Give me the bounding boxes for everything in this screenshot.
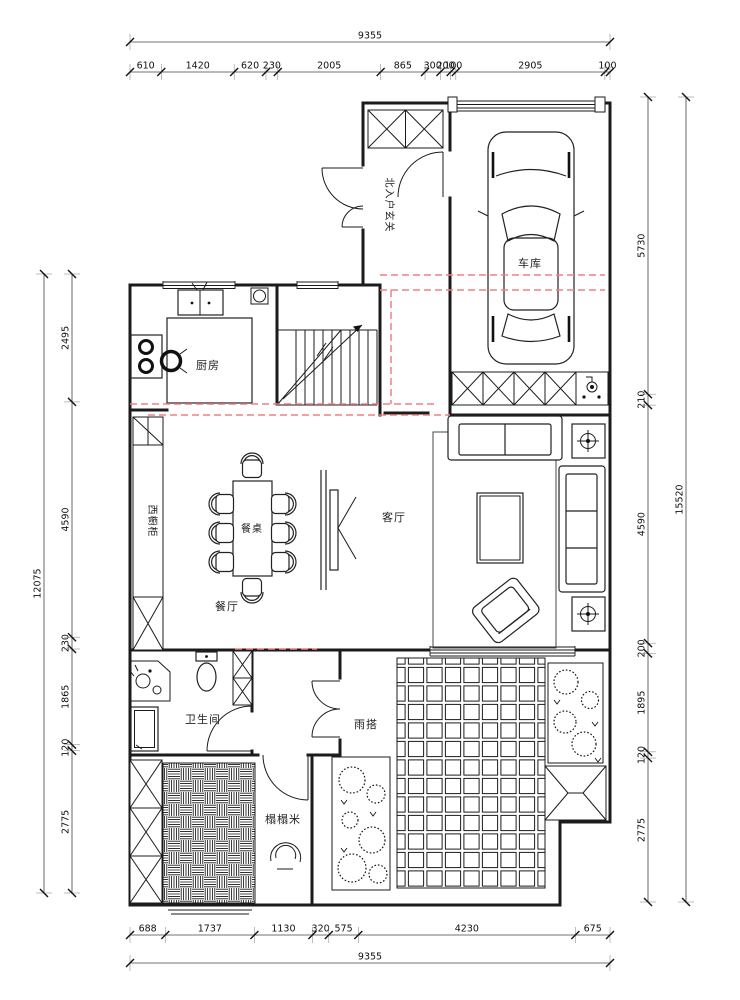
- entry-steps: [165, 906, 255, 914]
- dim-label: 15520: [675, 484, 686, 514]
- dining-chair: [209, 522, 234, 544]
- dining-table-label: 餐桌: [241, 522, 263, 535]
- rain-canopy-label: 雨搭: [354, 718, 378, 731]
- garage: 车库: [478, 132, 584, 364]
- west-cabinet-strip: 西橱柜: [133, 417, 163, 597]
- side-table-lamp-top: [572, 424, 605, 458]
- dim-chain-bottom: 6881737113032057542306759355: [126, 924, 614, 972]
- garage-door: [398, 152, 443, 197]
- tatami-chair: [271, 843, 301, 869]
- dim-label: 688: [139, 924, 157, 935]
- wok: [162, 352, 181, 371]
- living-room: 客厅: [382, 416, 605, 648]
- dining-room: 餐桌 餐厅: [209, 453, 356, 613]
- tatami-mat: [163, 763, 255, 903]
- dim-label: 575: [335, 924, 353, 935]
- west-cabinet-label: 西橱柜: [146, 505, 159, 538]
- dim-chain-top: 6101420620230200586530020010029051009355: [126, 31, 617, 81]
- foyer-window: [297, 280, 338, 290]
- garage-label: 车库: [518, 256, 542, 270]
- dim-chain-right: 573021045902001895120277515520: [637, 93, 695, 906]
- sofa-three-seat: [559, 466, 605, 592]
- dim-label: 4590: [637, 512, 648, 536]
- dim-label: 2775: [637, 818, 648, 842]
- dim-label: 2495: [61, 326, 72, 350]
- dining-chair: [272, 522, 297, 544]
- tatami-label: 榻榻米: [265, 812, 301, 826]
- dim-label: 9355: [358, 952, 382, 963]
- planting-bed-right: [548, 663, 603, 763]
- dim-label: 2905: [518, 61, 542, 72]
- vanity: [130, 661, 170, 701]
- dim-label: 2005: [317, 61, 341, 72]
- dim-label: 12075: [33, 568, 44, 598]
- dim-label: 100: [444, 61, 462, 72]
- dim-label: 1737: [198, 924, 222, 935]
- dim-label: 5730: [637, 234, 648, 258]
- bathroom: 卫生间: [130, 652, 221, 751]
- patio-tiles: [397, 658, 545, 888]
- kitchen-window: [163, 280, 235, 290]
- tatami-closet: [130, 760, 162, 903]
- dim-label: 4590: [61, 507, 72, 531]
- floorplan-page: 厨房 西橱柜 餐桌 餐厅: [0, 0, 740, 1000]
- planting-bed-left: [332, 757, 390, 890]
- washer: [131, 707, 158, 751]
- car: [478, 132, 584, 364]
- garage-rolling-door: [448, 97, 605, 112]
- dim-label: 210: [637, 391, 648, 409]
- dim-label: 320: [312, 924, 330, 935]
- dining-room-label: 餐厅: [215, 599, 239, 613]
- dining-chair: [272, 493, 297, 515]
- dining-chair: [209, 551, 234, 573]
- dim-label: 100: [598, 61, 616, 72]
- bathroom-label: 卫生间: [185, 712, 221, 726]
- dim-label: 1895: [637, 691, 648, 715]
- courtyard: 雨搭: [332, 658, 606, 890]
- floorplan-drawing: 厨房 西橱柜 餐桌 餐厅: [0, 0, 740, 1000]
- dining-chair: [241, 579, 263, 604]
- dining-chair: [241, 453, 263, 478]
- cabinet-strip-column: [133, 597, 163, 650]
- dim-label: 9355: [358, 31, 382, 42]
- dim-label: 2775: [61, 810, 72, 834]
- dining-chair: [272, 551, 297, 573]
- dim-label: 230: [263, 61, 281, 72]
- kitchen-label: 厨房: [196, 359, 220, 372]
- bathroom-column: [233, 651, 252, 705]
- dim-chain-left: 249545902301865120277512075: [33, 270, 81, 897]
- entry-door: [322, 168, 363, 227]
- tv-panel: [321, 470, 356, 590]
- armchair: [470, 576, 541, 645]
- dim-label: 1130: [271, 924, 295, 935]
- staircase: [277, 325, 377, 405]
- garage-storage-band: [452, 372, 608, 405]
- toilet: [196, 652, 217, 691]
- tatami-room: 榻榻米: [163, 763, 301, 914]
- dim-label: 1420: [186, 61, 210, 72]
- dim-label: 675: [584, 924, 602, 935]
- dim-label: 4230: [455, 924, 479, 935]
- sofa-two-seat: [448, 416, 562, 460]
- side-table-lamp-bottom: [572, 597, 605, 631]
- dim-label: 620: [241, 61, 259, 72]
- living-south-window: [430, 645, 575, 656]
- foyer-closet: [368, 110, 443, 148]
- dim-label: 1865: [61, 685, 72, 709]
- dim-label: 230: [61, 634, 72, 652]
- fridge: [133, 417, 163, 445]
- canopy-double-door: [312, 681, 340, 737]
- stove: [131, 335, 187, 378]
- living-room-label: 客厅: [382, 510, 406, 524]
- water-heater: [251, 288, 268, 304]
- hip-roof-structure: [545, 766, 606, 820]
- dining-chair: [209, 493, 234, 515]
- dim-label: 200: [637, 639, 648, 657]
- dim-label: 610: [137, 61, 155, 72]
- coffee-table: [477, 493, 523, 563]
- tatami-door: [263, 755, 308, 800]
- kitchen: 厨房: [131, 282, 268, 403]
- dim-label: 865: [394, 61, 412, 72]
- foyer-label: 北入户玄关: [383, 178, 396, 233]
